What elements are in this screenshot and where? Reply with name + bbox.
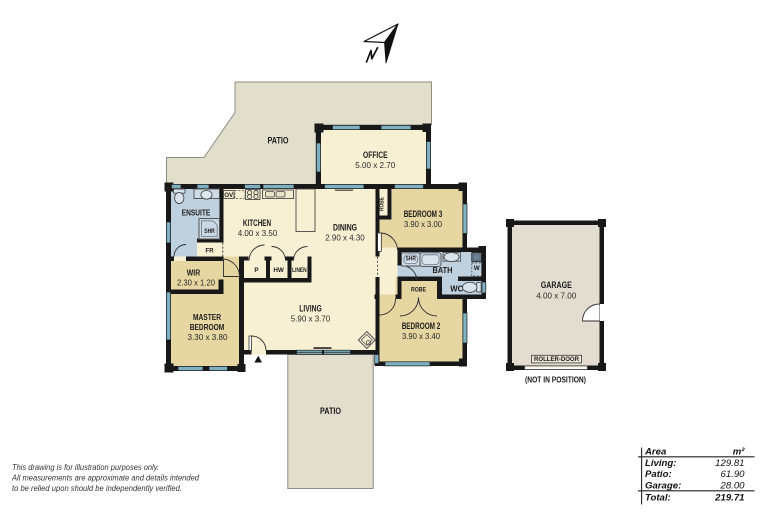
svg-text:219.71: 219.71 (714, 493, 744, 504)
svg-text:WIR: WIR (187, 268, 201, 278)
svg-text:2.30 x 1.20: 2.30 x 1.20 (177, 279, 216, 288)
svg-text:MASTER: MASTER (193, 312, 222, 322)
svg-text:GARAGE: GARAGE (541, 279, 572, 290)
svg-text:BEDROOM 2: BEDROOM 2 (402, 320, 441, 331)
svg-text:FR: FR (205, 248, 214, 255)
svg-text:5.00 x 2.70: 5.00 x 2.70 (355, 161, 396, 170)
svg-text:ENSUITE: ENSUITE (182, 208, 211, 218)
svg-text:ROLLER-DOOR: ROLLER-DOOR (534, 356, 580, 363)
svg-text:ROBE: ROBE (411, 286, 426, 293)
svg-text:DINING: DINING (333, 222, 357, 233)
svg-text:Total:: Total: (645, 493, 671, 504)
svg-text:Garage:: Garage: (645, 481, 681, 492)
svg-text:4.00 x 3.50: 4.00 x 3.50 (238, 229, 278, 238)
svg-text:(NOT IN POSITION): (NOT IN POSITION) (525, 375, 586, 385)
svg-text:4.00 x 7.00: 4.00 x 7.00 (536, 291, 577, 300)
svg-text:Area: Area (644, 446, 667, 457)
svg-text:3.90 x 3.40: 3.90 x 3.40 (402, 332, 441, 341)
svg-text:BEDROOM 3: BEDROOM 3 (404, 208, 443, 219)
svg-text:PATIO: PATIO (268, 135, 289, 146)
svg-text:BATH: BATH (433, 265, 453, 275)
svg-text:m²: m² (733, 446, 746, 457)
svg-text:3.30 x 3.80: 3.30 x 3.80 (188, 333, 229, 342)
svg-text:OFFICE: OFFICE (363, 149, 388, 160)
svg-text:SHR: SHR (204, 228, 215, 235)
svg-text:BEDROOM: BEDROOM (190, 322, 225, 332)
svg-text:to be relied upon should be in: to be relied upon should be independentl… (12, 484, 182, 493)
svg-text:61.90: 61.90 (720, 469, 745, 480)
svg-text:OV: OV (224, 192, 234, 199)
svg-text:W: W (474, 265, 480, 272)
svg-text:SHR: SHR (405, 256, 416, 263)
svg-text:WC: WC (450, 283, 463, 293)
svg-text:LIVING: LIVING (299, 303, 322, 314)
svg-text:129.81: 129.81 (715, 458, 744, 469)
svg-text:PATIO: PATIO (320, 405, 341, 416)
svg-text:5.90 x 3.70: 5.90 x 3.70 (291, 315, 331, 324)
svg-text:This drawing is for illustrati: This drawing is for illustration purpose… (12, 463, 159, 472)
svg-text:Living:: Living: (645, 458, 676, 469)
svg-text:2.90 x 4.30: 2.90 x 4.30 (325, 234, 365, 243)
svg-text:ROBE: ROBE (379, 197, 386, 211)
svg-text:28.00: 28.00 (719, 481, 745, 492)
svg-text:3.90 x 3.00: 3.90 x 3.00 (404, 220, 443, 229)
svg-text:P: P (254, 267, 258, 274)
svg-text:KITCHEN: KITCHEN (243, 217, 271, 228)
svg-text:HW: HW (273, 267, 284, 274)
svg-text:All measurements are approxima: All measurements are approximate and det… (11, 474, 199, 483)
svg-text:Patio:: Patio: (645, 469, 672, 480)
svg-text:LINEN: LINEN (292, 267, 307, 274)
